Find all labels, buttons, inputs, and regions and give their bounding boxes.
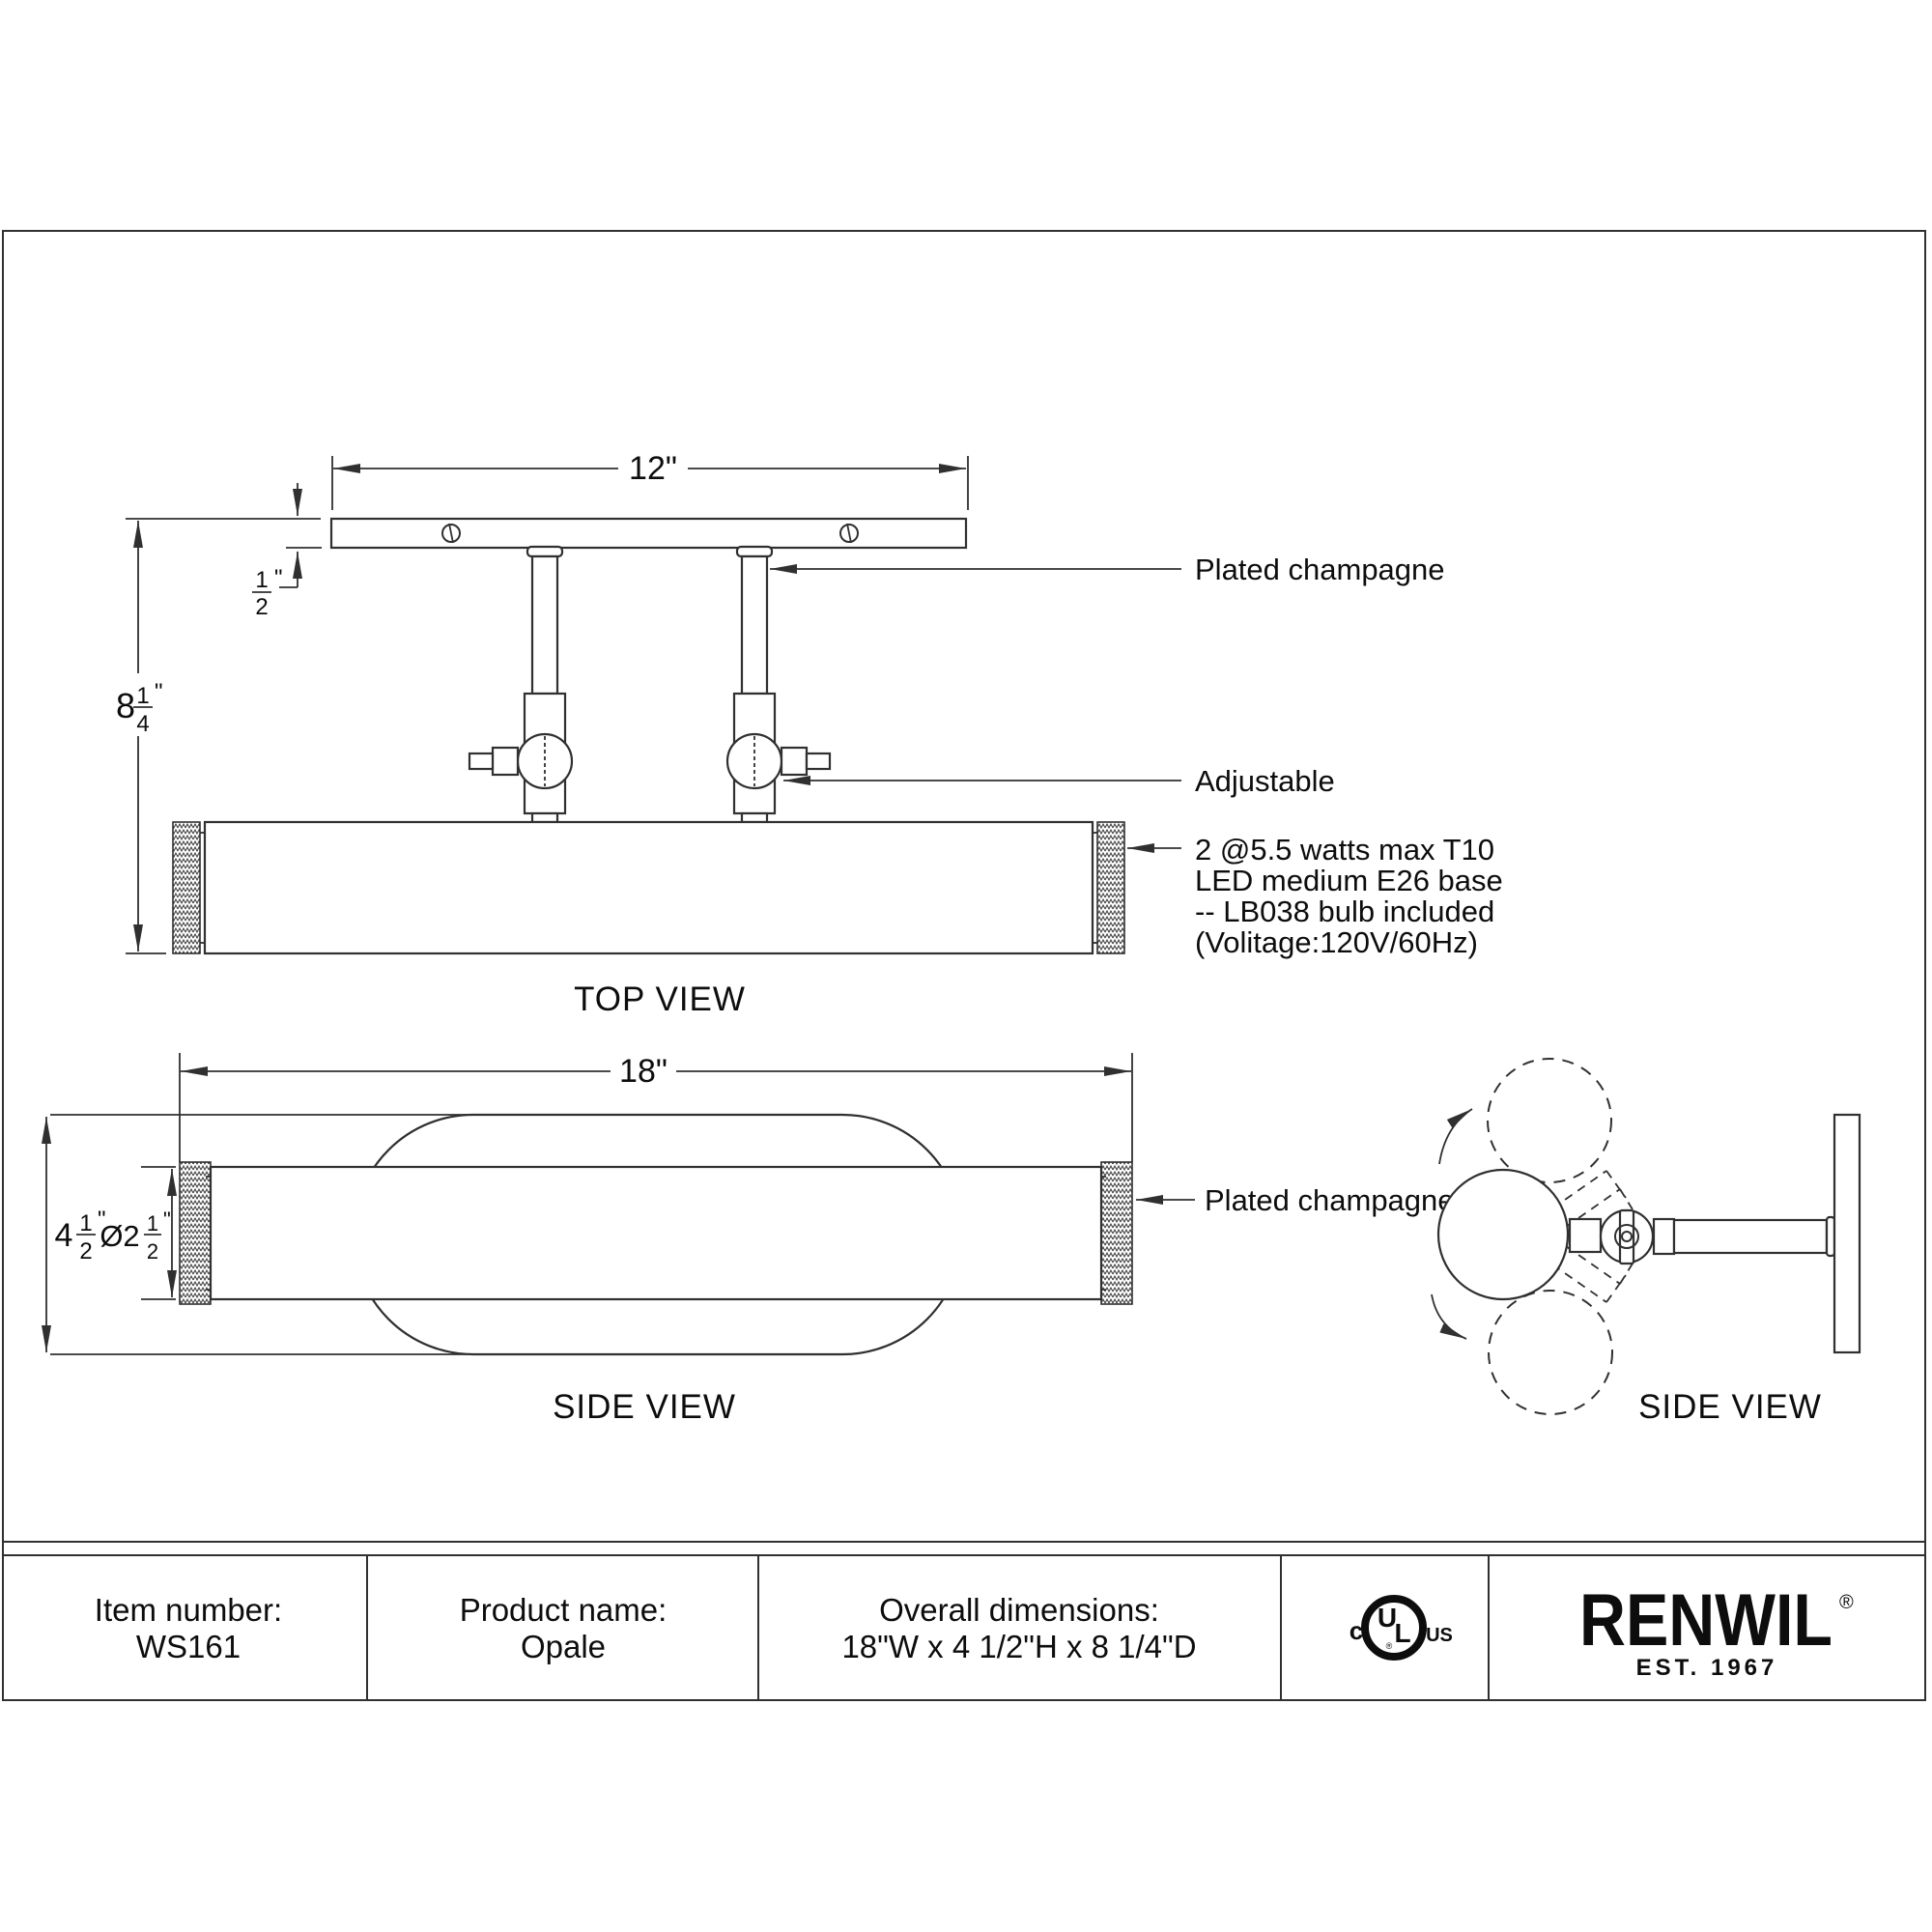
end-cap-right-side — [1101, 1162, 1132, 1304]
rotation-arrow-up-icon — [1439, 1109, 1472, 1164]
side-view-left-title: SIDE VIEW — [553, 1388, 736, 1426]
plated-champagne-label: Plated champagne — [1195, 553, 1445, 586]
side-view-left: 18" 4 1 2 " Ø2 1 2 " — [46, 1053, 1455, 1426]
dim-12in-label: 12" — [629, 450, 677, 487]
dim-half-numerator: 1 — [255, 567, 268, 593]
annotation-bulb: 2 @5.5 watts max T10 LED medium E26 base… — [1127, 833, 1503, 959]
renwil-logo: RENWIL ® EST. 1967 — [1579, 1579, 1854, 1681]
wall-plate — [1834, 1115, 1860, 1352]
overall-dimensions-value: 18"W x 4 1/2"H x 8 1/4"D — [841, 1629, 1196, 1664]
brand-established: EST. 1967 — [1636, 1655, 1778, 1681]
thumb-knob-right — [807, 753, 830, 769]
product-name-label: Product name: — [460, 1592, 668, 1628]
bulb-spec-line-3: -- LB038 bulb included — [1195, 895, 1494, 928]
end-cap-left-side — [180, 1162, 211, 1304]
wall-arm — [1674, 1220, 1827, 1253]
item-number-label: Item number: — [95, 1592, 282, 1628]
dim-8q-whole: 8 — [116, 686, 135, 725]
dim-18in-label: 18" — [619, 1053, 668, 1090]
knob-bracket-right — [781, 748, 807, 775]
shade-connector — [1570, 1219, 1601, 1252]
ul-registered-mark: ® — [1386, 1641, 1393, 1651]
adjustable-label: Adjustable — [1195, 764, 1335, 798]
annotation-plated-side: Plated champagne — [1136, 1183, 1455, 1217]
glass-cylinder-side — [211, 1167, 1101, 1299]
rotated-shade-ghost-bottom — [1489, 1291, 1612, 1414]
bulb-spec-line-2: LED medium E26 base — [1195, 864, 1503, 897]
stem-stub-left — [532, 813, 557, 822]
rotation-arrow-down-icon — [1432, 1294, 1466, 1339]
stem-left — [532, 556, 557, 694]
ul-letters-us: US — [1426, 1625, 1453, 1646]
dim-dia-denominator: 2 — [147, 1239, 158, 1264]
dimension-12in: 12" — [332, 450, 968, 510]
stem-cap-left — [527, 547, 562, 556]
spec-sheet: 12" 1 2 " 8 1 4 " — [0, 0, 1932, 1932]
technical-drawing: 12" 1 2 " 8 1 4 " — [0, 0, 1932, 1932]
arm-end-cap — [1827, 1217, 1834, 1256]
dim-4h-numerator: 1 — [79, 1210, 92, 1236]
knob-bracket-left — [493, 748, 518, 775]
side-view-right: SIDE VIEW — [1432, 1059, 1860, 1426]
footer-table: Item number: WS161 Product name: Opale O… — [3, 1555, 1925, 1700]
overall-dimensions-label: Overall dimensions: — [879, 1592, 1159, 1628]
footer-cell-dimensions: Overall dimensions: 18"W x 4 1/2"H x 8 1… — [841, 1592, 1196, 1664]
item-number-value: WS161 — [136, 1629, 241, 1664]
mounting-plate — [331, 519, 966, 548]
end-cap-right-top — [1097, 822, 1124, 953]
dim-dia-whole: Ø2 — [99, 1219, 139, 1253]
footer-cell-product: Product name: Opale — [460, 1592, 668, 1664]
ul-certification-logo: U L ® c US — [1350, 1599, 1453, 1657]
frame — [3, 231, 1925, 1700]
annotation-adjustable: Adjustable — [783, 764, 1335, 798]
pivot-joint — [1601, 1210, 1653, 1264]
dim-8q-numerator: 1 — [136, 683, 149, 709]
stem-right — [742, 556, 767, 694]
dimension-diameter: Ø2 1 2 " — [99, 1167, 176, 1299]
glass-cylinder-top — [205, 822, 1093, 953]
dim-8q-denominator: 4 — [136, 711, 149, 737]
shade-end-circle — [1438, 1170, 1568, 1299]
thumb-knob-left — [469, 753, 493, 769]
bulb-spec-line-1: 2 @5.5 watts max T10 — [1195, 833, 1494, 867]
arm-left — [469, 547, 572, 822]
border-frame — [3, 231, 1925, 1700]
brand-name: RENWIL — [1579, 1579, 1833, 1662]
brand-registered-mark: ® — [1839, 1592, 1854, 1613]
footer-cell-item: Item number: WS161 — [95, 1592, 282, 1664]
dim-half-denominator: 2 — [255, 594, 268, 620]
annotation-plated-top: Plated champagne — [770, 553, 1445, 586]
top-view: 12" 1 2 " 8 1 4 " — [116, 450, 1503, 1018]
top-view-title: TOP VIEW — [574, 980, 746, 1018]
dim-4h-whole: 4 — [55, 1217, 73, 1254]
dim-dia-unit: " — [163, 1207, 171, 1232]
end-cap-left-top — [173, 822, 200, 953]
rotated-shade-ghost-top — [1488, 1059, 1611, 1182]
dim-8q-unit: " — [155, 679, 163, 705]
ul-letter-l: L — [1394, 1618, 1410, 1648]
dimension-half-inch: 1 2 " — [252, 483, 322, 620]
dim-dia-numerator: 1 — [147, 1211, 158, 1236]
ul-letter-c: c — [1350, 1616, 1363, 1645]
arm-collar — [1654, 1219, 1674, 1254]
side-view-right-title: SIDE VIEW — [1638, 1388, 1822, 1426]
bulb-spec-line-4: (Volitage:120V/60Hz) — [1195, 925, 1478, 959]
dim-half-unit: " — [274, 565, 283, 591]
stem-cap-right — [737, 547, 772, 556]
stem-stub-right — [742, 813, 767, 822]
dim-4h-denominator: 2 — [79, 1238, 92, 1264]
plated-champagne-side-label: Plated champagne — [1205, 1183, 1455, 1217]
product-name-value: Opale — [521, 1629, 606, 1664]
